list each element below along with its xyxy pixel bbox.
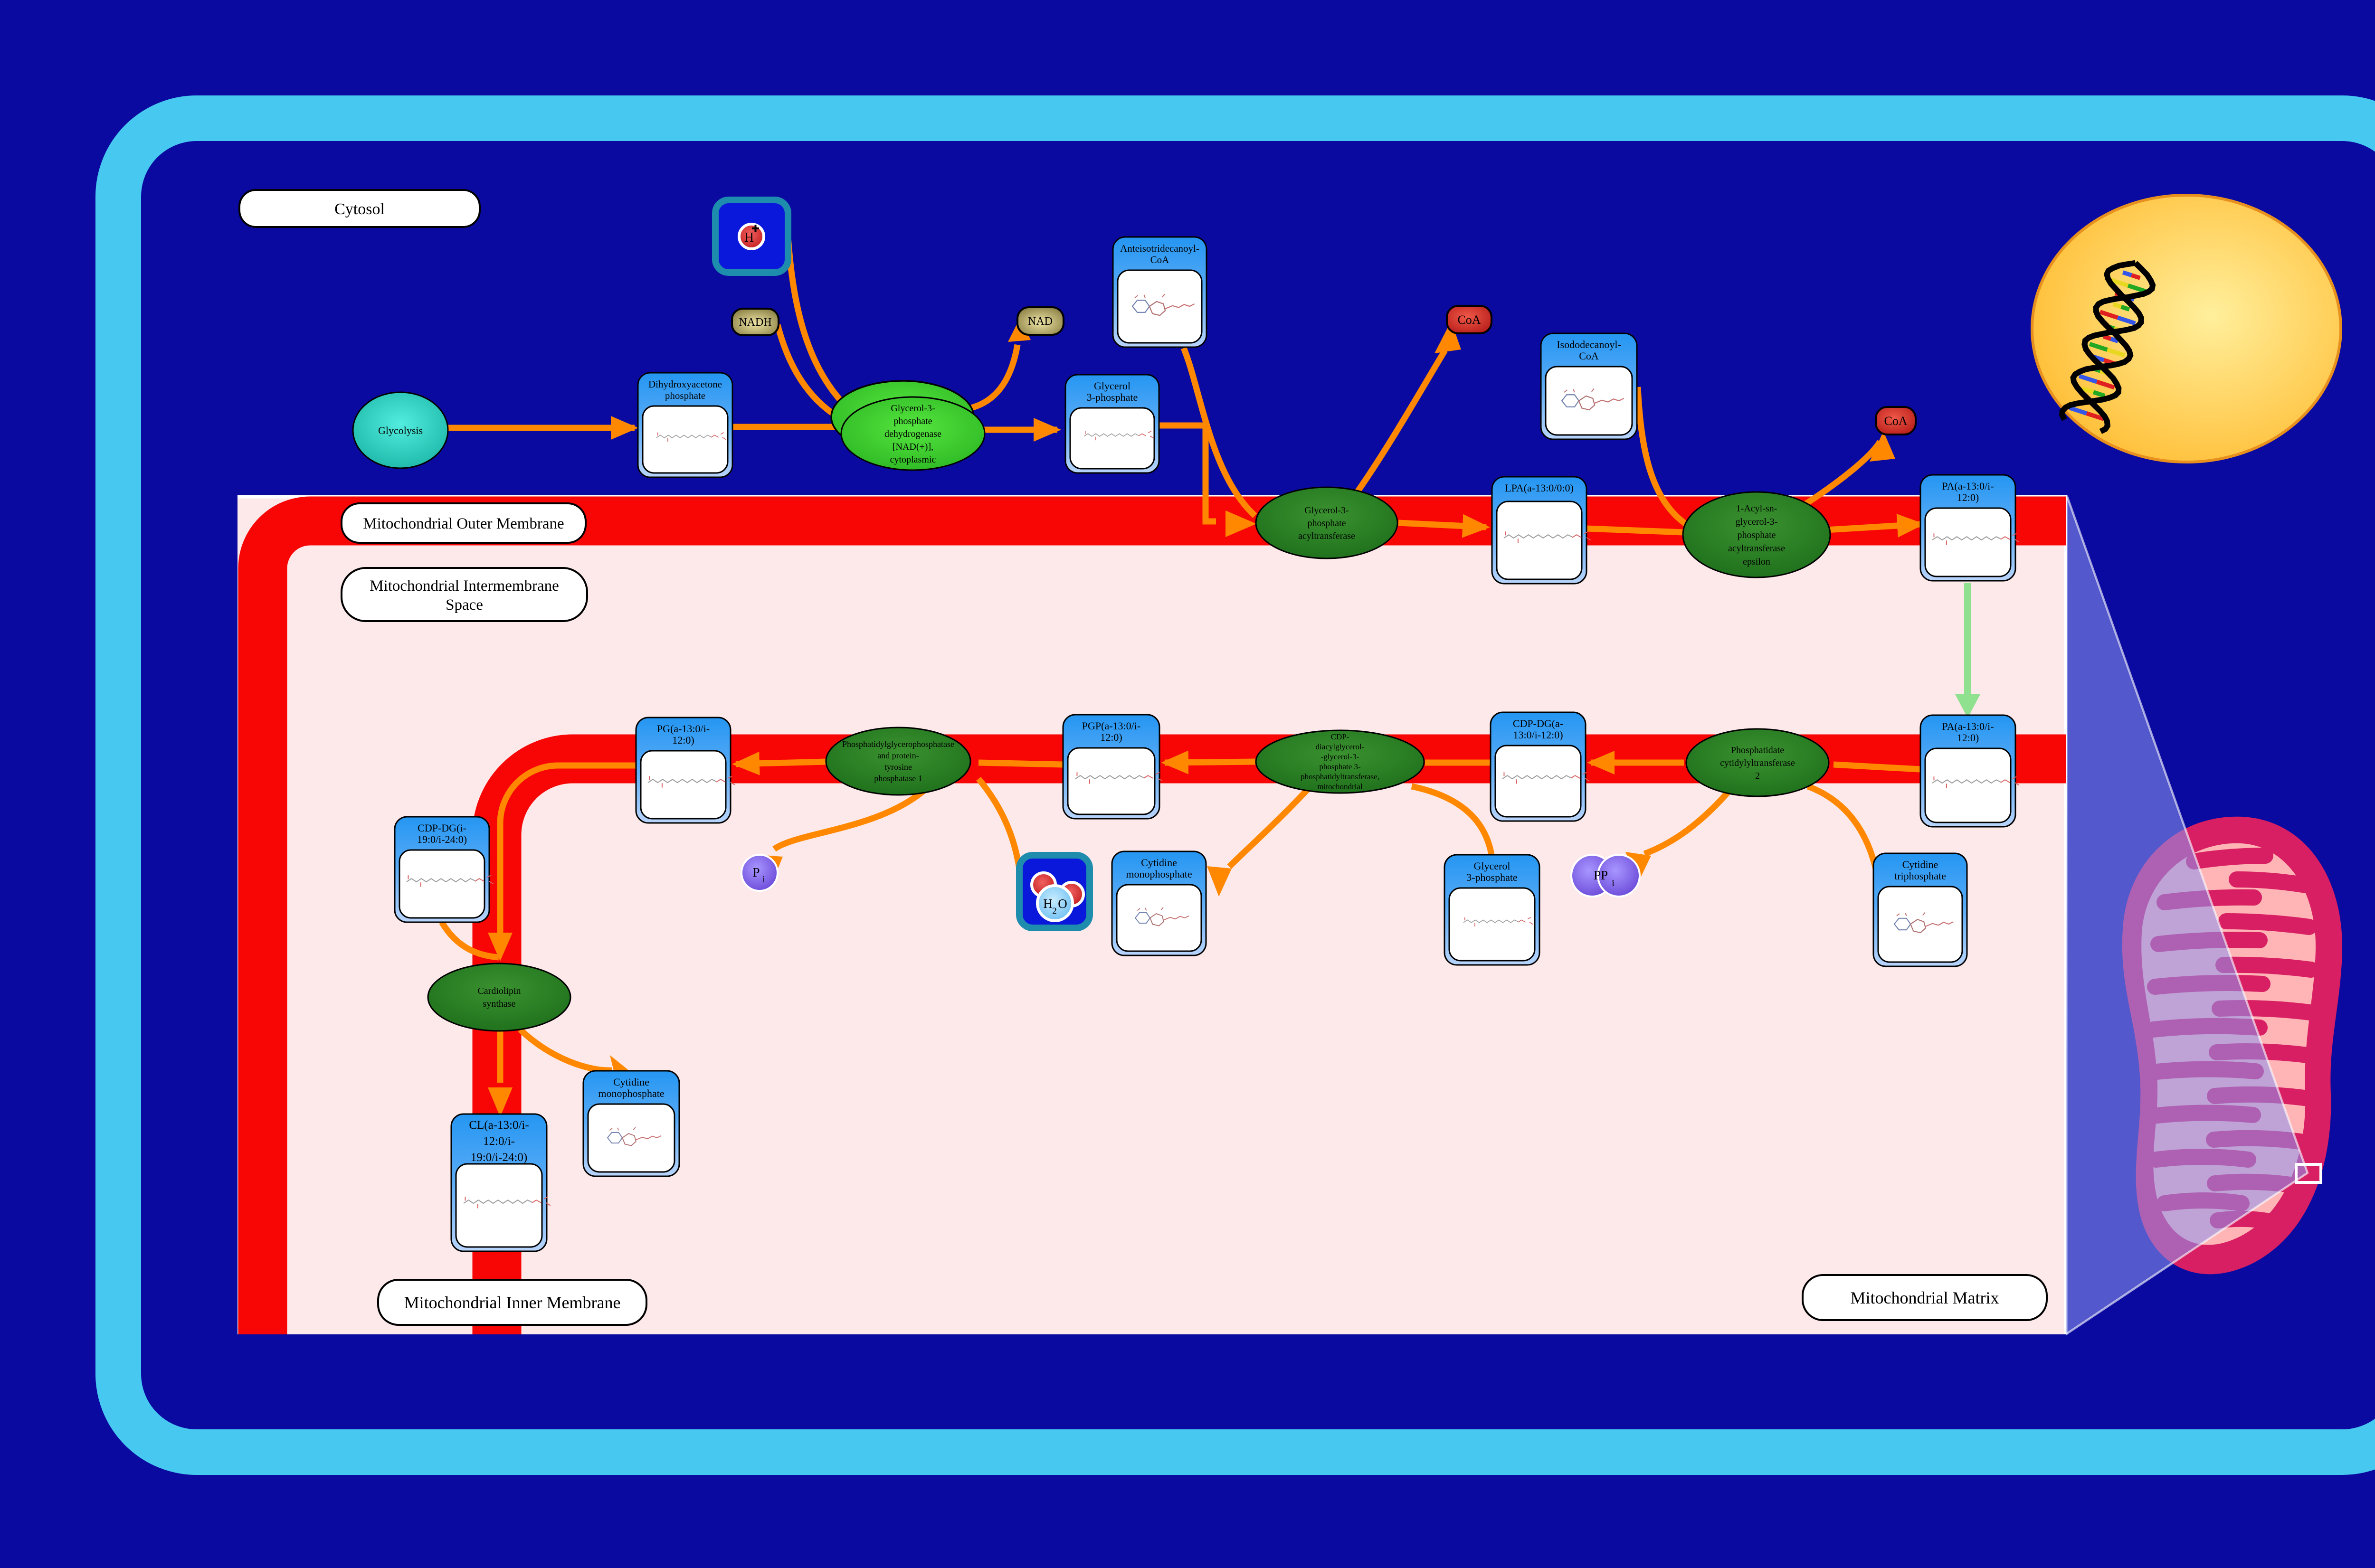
svg-text:phosphatidyltransferase,: phosphatidyltransferase, bbox=[1301, 772, 1379, 781]
svg-text:19:0/i-24:0): 19:0/i-24:0) bbox=[417, 833, 467, 845]
svg-text:3-phosphate: 3-phosphate bbox=[1087, 391, 1138, 403]
svg-text:2: 2 bbox=[1052, 906, 1057, 916]
svg-text:O: O bbox=[1058, 897, 1067, 911]
svg-text:PA(a-13:0/i-: PA(a-13:0/i- bbox=[1942, 480, 1994, 492]
svg-text:CoA: CoA bbox=[1579, 350, 1599, 362]
svg-text:NAD: NAD bbox=[1028, 315, 1053, 328]
svg-text:phosphate 3-: phosphate 3- bbox=[1319, 762, 1361, 771]
svg-text:triphosphate: triphosphate bbox=[1894, 870, 1946, 882]
svg-text:Mitochondrial Outer Membrane: Mitochondrial Outer Membrane bbox=[363, 515, 564, 532]
svg-text:1-Acyl-sn-: 1-Acyl-sn- bbox=[1736, 503, 1777, 514]
svg-text:Cytidine: Cytidine bbox=[613, 1076, 649, 1088]
svg-text:NADH: NADH bbox=[739, 316, 771, 329]
svg-text:dehydrogenase: dehydrogenase bbox=[884, 429, 941, 439]
svg-text:P: P bbox=[752, 865, 760, 879]
svg-text:Cytidine: Cytidine bbox=[1141, 857, 1177, 869]
svg-text:12:0/i-: 12:0/i- bbox=[483, 1135, 515, 1148]
svg-text:2: 2 bbox=[1755, 771, 1760, 781]
svg-text:19:0/i-24:0): 19:0/i-24:0) bbox=[471, 1151, 527, 1164]
svg-text:i: i bbox=[1612, 878, 1615, 888]
svg-text:CoA: CoA bbox=[1457, 313, 1481, 327]
svg-text:CL(a-13:0/i-: CL(a-13:0/i- bbox=[469, 1119, 529, 1132]
svg-text:PA(a-13:0/i-: PA(a-13:0/i- bbox=[1942, 720, 1994, 732]
svg-text:PP: PP bbox=[1594, 868, 1608, 882]
svg-text:synthase: synthase bbox=[483, 999, 516, 1009]
svg-text:diacylglycerol-: diacylglycerol- bbox=[1316, 742, 1365, 751]
svg-text:phosphate: phosphate bbox=[665, 390, 705, 401]
svg-text:Glycerol: Glycerol bbox=[1474, 860, 1510, 872]
svg-text:Mitochondrial Intermembrane: Mitochondrial Intermembrane bbox=[370, 577, 559, 595]
svg-text:Mitochondrial Matrix: Mitochondrial Matrix bbox=[1851, 1288, 1999, 1307]
svg-text:H: H bbox=[744, 230, 754, 245]
svg-text:LPA(a-13:0/0:0): LPA(a-13:0/0:0) bbox=[1505, 482, 1574, 494]
svg-text:Phosphatidylglycerophosphatase: Phosphatidylglycerophosphatase bbox=[842, 739, 954, 749]
svg-text:Isododecanoyl-: Isododecanoyl- bbox=[1557, 339, 1621, 350]
svg-text:acyltransferase: acyltransferase bbox=[1298, 531, 1355, 541]
svg-text:12:0): 12:0) bbox=[1100, 731, 1122, 743]
svg-text:PGP(a-13:0/i-: PGP(a-13:0/i- bbox=[1082, 720, 1140, 732]
svg-text:Cytidine: Cytidine bbox=[1902, 859, 1938, 870]
svg-text:phosphate: phosphate bbox=[1737, 530, 1776, 540]
svg-text:phosphate: phosphate bbox=[1307, 518, 1346, 529]
svg-text:CoA: CoA bbox=[1884, 414, 1907, 428]
svg-text:phosphate: phosphate bbox=[893, 416, 932, 426]
svg-text:tyrosine: tyrosine bbox=[884, 762, 912, 772]
svg-text:Space: Space bbox=[446, 596, 483, 614]
svg-text:Phosphatidate: Phosphatidate bbox=[1731, 745, 1784, 756]
svg-text:cytoplasmic: cytoplasmic bbox=[890, 454, 936, 465]
svg-text:cytidylyltransferase: cytidylyltransferase bbox=[1720, 758, 1795, 768]
svg-text:CDP-DG(a-: CDP-DG(a- bbox=[1513, 718, 1563, 729]
svg-text:13:0/i-12:0): 13:0/i-12:0) bbox=[1513, 729, 1563, 741]
svg-text:CDP-: CDP- bbox=[1331, 732, 1349, 741]
svg-text:glycerol-3-: glycerol-3- bbox=[1736, 517, 1778, 527]
svg-text:Glycolysis: Glycolysis bbox=[378, 425, 423, 436]
svg-text:acyltransferase: acyltransferase bbox=[1728, 543, 1785, 554]
svg-text:-glycerol-3-: -glycerol-3- bbox=[1320, 752, 1359, 761]
svg-text:phosphatase 1: phosphatase 1 bbox=[874, 774, 922, 783]
svg-text:mitochondrial: mitochondrial bbox=[1317, 782, 1363, 791]
svg-text:3-phosphate: 3-phosphate bbox=[1466, 871, 1518, 883]
svg-text:Glycerol-3-: Glycerol-3- bbox=[1304, 505, 1349, 516]
svg-text:i: i bbox=[762, 874, 765, 885]
svg-text:Glycerol-3-: Glycerol-3- bbox=[891, 403, 935, 414]
svg-text:Cardiolipin: Cardiolipin bbox=[477, 986, 521, 996]
svg-text:12:0): 12:0) bbox=[672, 734, 694, 746]
svg-text:Dihydroxyacetone: Dihydroxyacetone bbox=[648, 378, 722, 390]
svg-text:PG(a-13:0/i-: PG(a-13:0/i- bbox=[657, 723, 710, 735]
svg-text:[NAD(+)],: [NAD(+)], bbox=[893, 442, 933, 452]
svg-text:Mitochondrial Inner Membrane: Mitochondrial Inner Membrane bbox=[404, 1293, 621, 1312]
svg-text:Anteisotridecanoyl-: Anteisotridecanoyl- bbox=[1120, 243, 1199, 254]
svg-text:12:0): 12:0) bbox=[1957, 732, 1979, 744]
svg-text:and protein-: and protein- bbox=[877, 751, 919, 760]
svg-text:H: H bbox=[1043, 897, 1053, 911]
svg-text:Cytosol: Cytosol bbox=[334, 200, 385, 218]
svg-text:Glycerol: Glycerol bbox=[1094, 380, 1130, 392]
svg-text:12:0): 12:0) bbox=[1957, 491, 1979, 503]
svg-text:monophosphate: monophosphate bbox=[1126, 868, 1192, 880]
svg-text:CoA: CoA bbox=[1150, 254, 1170, 265]
svg-text:CDP-DG(i-: CDP-DG(i- bbox=[418, 822, 466, 834]
svg-text:monophosphate: monophosphate bbox=[598, 1087, 664, 1099]
svg-text:epsilon: epsilon bbox=[1743, 557, 1770, 567]
